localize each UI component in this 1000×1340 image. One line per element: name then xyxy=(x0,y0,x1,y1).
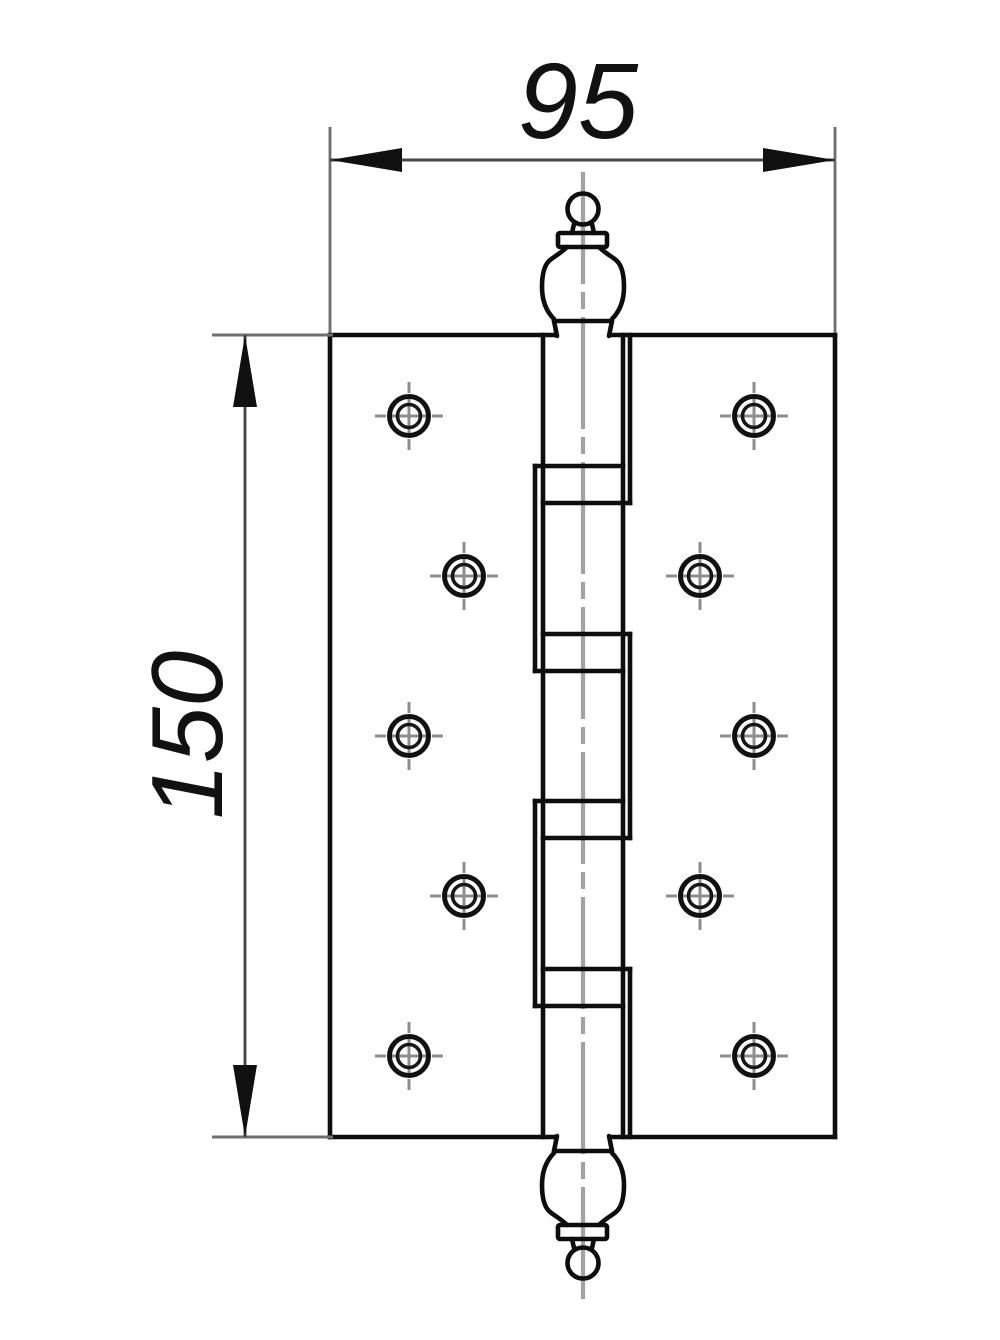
height-dimension-label: 150 xyxy=(132,651,244,820)
hinge-technical-drawing: 95 150 xyxy=(0,0,1000,1340)
width-dimension-label: 95 xyxy=(518,40,639,161)
technical-drawing-page: 95 150 xyxy=(0,0,1000,1340)
